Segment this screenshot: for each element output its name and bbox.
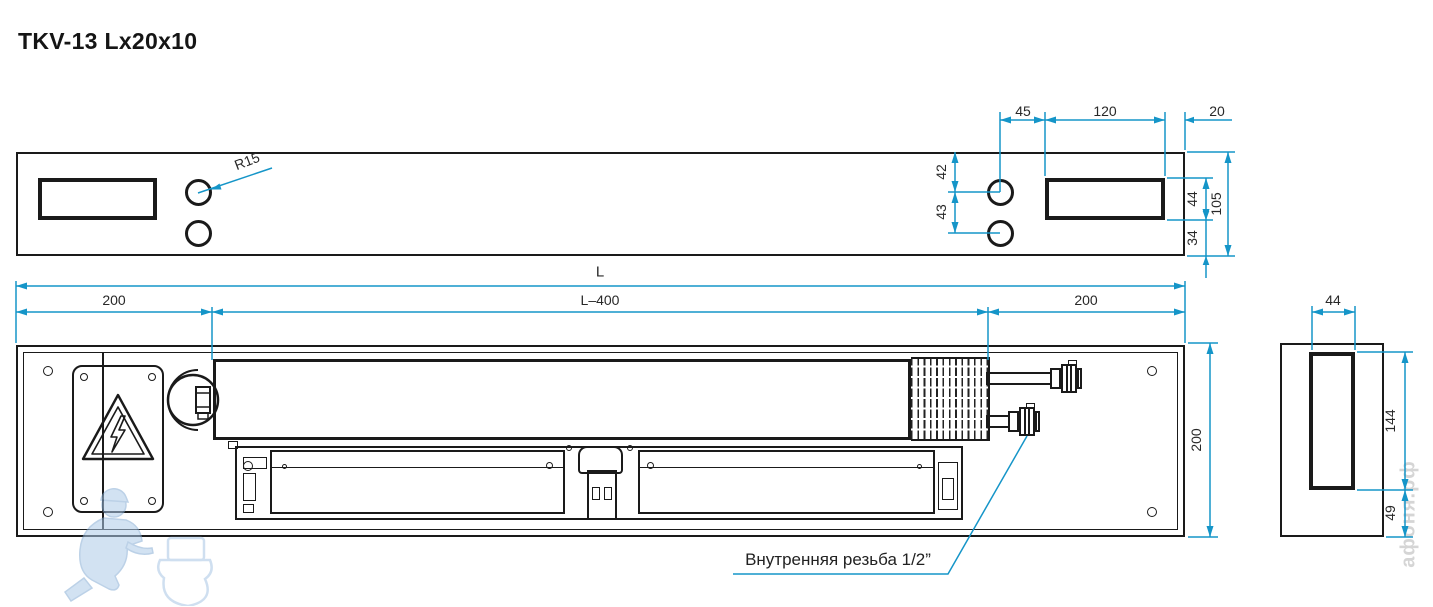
dim-label-120: 120 <box>1093 103 1116 119</box>
leader-r15 <box>198 168 272 193</box>
dim-label-20: 20 <box>1209 103 1225 119</box>
drawing-title: TKV-13 Lx20x10 <box>18 28 197 55</box>
dim-label-L400: L–400 <box>581 292 620 308</box>
dimension-overlay <box>0 0 1433 607</box>
dim-label-42: 42 <box>933 164 949 180</box>
dim-label-200-depth: 200 <box>1188 428 1204 451</box>
dim-label-L: L <box>596 264 604 281</box>
dim-label-200-right: 200 <box>1074 292 1097 308</box>
dim-label-43: 43 <box>933 204 949 220</box>
dim-label-34: 34 <box>1184 230 1200 246</box>
dim-label-200-left: 200 <box>102 292 125 308</box>
thread-note: Внутренняя резьба 1/2” <box>745 550 931 570</box>
dim-label-144: 144 <box>1382 409 1398 432</box>
dim-label-45: 45 <box>1015 103 1031 119</box>
dim-label-105: 105 <box>1208 192 1224 215</box>
dim-label-49: 49 <box>1382 505 1398 521</box>
dim-label-44-elevation: 44 <box>1184 191 1200 207</box>
dim-label-44-side: 44 <box>1325 292 1341 308</box>
